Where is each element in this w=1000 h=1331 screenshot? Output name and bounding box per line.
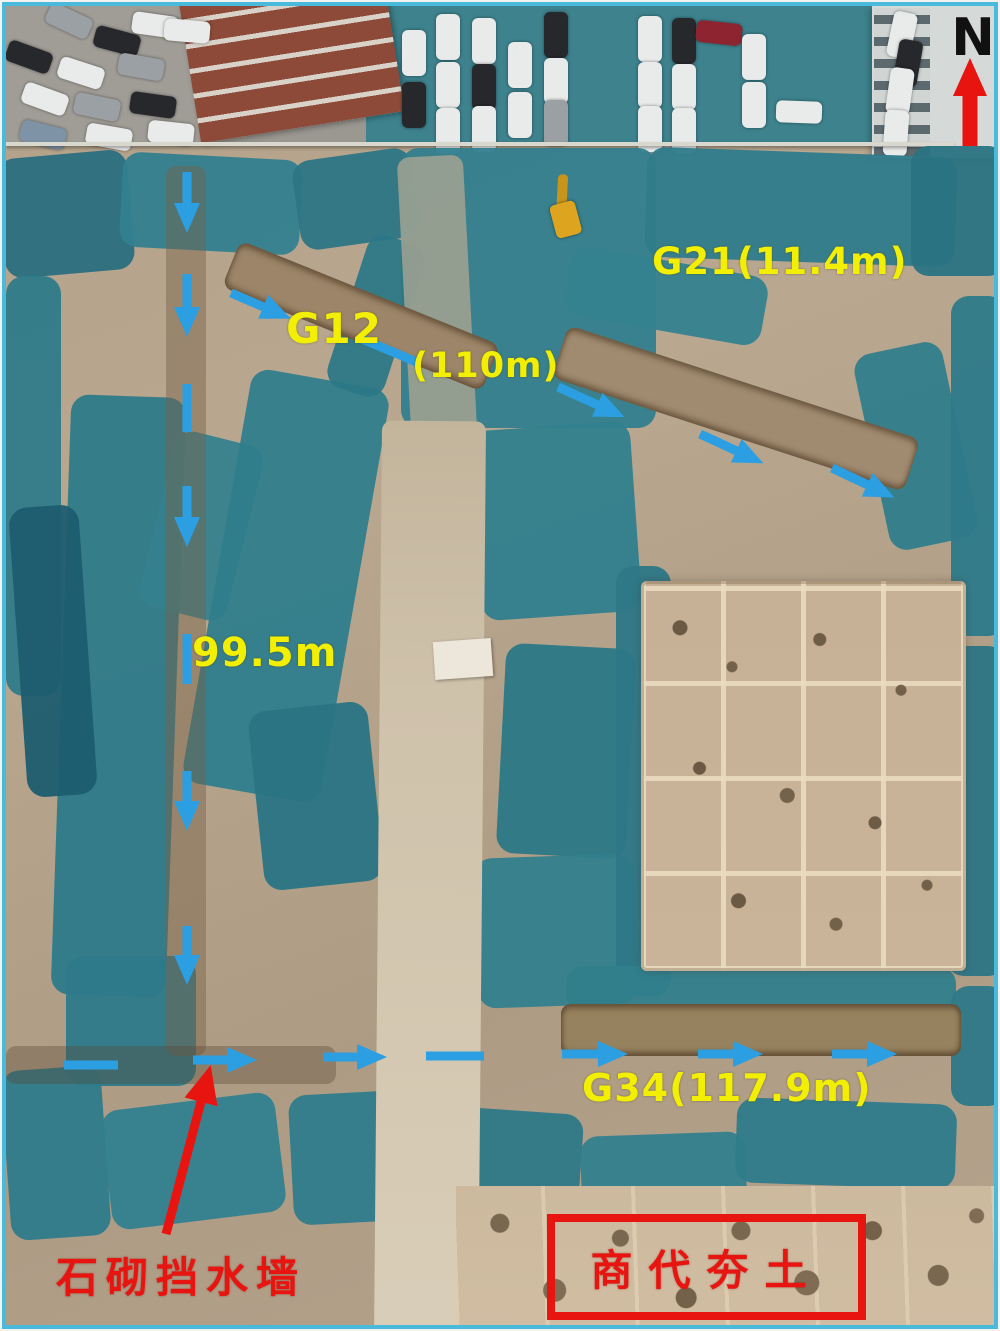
label-g12: G12 [286, 304, 382, 353]
dust-net-patch [99, 1091, 287, 1231]
parked-car [163, 18, 211, 44]
parked-car [742, 82, 766, 128]
dust-net-patch [2, 1065, 112, 1242]
trench-g34-west [6, 1046, 336, 1084]
parked-car [544, 58, 568, 104]
label-g21: G21(11.4m) [652, 240, 908, 283]
label-g34: G34(117.9m) [582, 1066, 872, 1110]
parked-car [472, 64, 496, 110]
parked-car [672, 18, 696, 64]
label-west-length: 99.5m [192, 630, 337, 676]
parked-car [544, 100, 568, 146]
parked-car [402, 30, 426, 76]
north-label: N [944, 10, 998, 66]
excavation-grid-squares [641, 581, 966, 971]
parked-car [472, 18, 496, 64]
parked-car [436, 14, 460, 60]
dust-net-patch [119, 151, 304, 255]
label-stone-wall: 石砌挡水墙 [56, 1244, 306, 1305]
parked-car [742, 34, 766, 80]
parked-car [402, 82, 426, 128]
dust-net-patch [247, 700, 385, 892]
dust-net-patch [2, 149, 136, 280]
trench-west-wall [166, 166, 206, 1056]
parked-car [508, 42, 532, 88]
aerial-photo: N G12 (110m) G21(11.4m) 99.5m G34(117.9m… [2, 2, 998, 1329]
parked-car [638, 62, 662, 108]
screenshot-root: N G12 (110m) G21(11.4m) 99.5m G34(117.9m… [0, 0, 1000, 1331]
parked-car [508, 92, 532, 138]
label-shang-rammed-earth: 商代夯土 [590, 1237, 822, 1298]
parked-car [695, 20, 743, 47]
parked-car [436, 62, 460, 108]
dust-net-patch [911, 146, 998, 276]
dust-net-patch [735, 1097, 958, 1190]
parked-car [544, 12, 568, 58]
site-fence [6, 142, 954, 146]
parked-car [638, 16, 662, 62]
label-g12-length: (110m) [412, 346, 560, 386]
shang-rammed-earth-box: 商代夯土 [547, 1214, 866, 1320]
trench-g34 [561, 1004, 961, 1056]
white-board [433, 638, 494, 680]
parked-car [776, 100, 823, 124]
parked-car [672, 64, 696, 110]
parked-car [882, 109, 909, 157]
excavator-body [549, 200, 583, 240]
